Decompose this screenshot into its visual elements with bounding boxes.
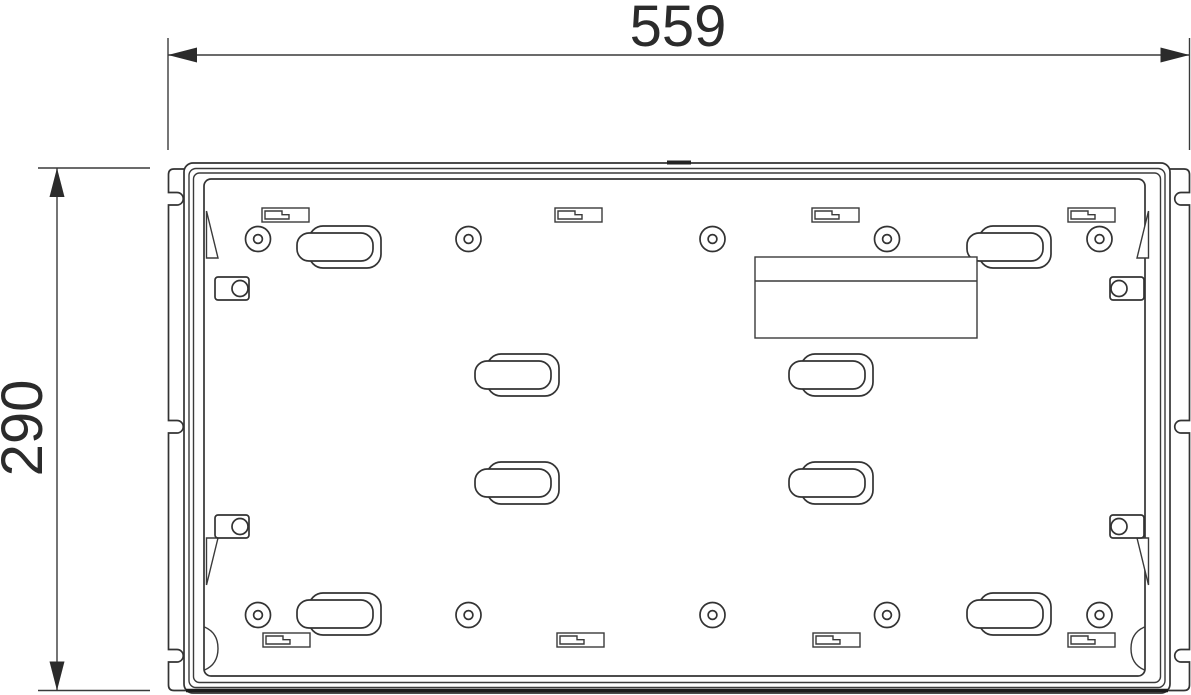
width-dimension: 559 xyxy=(168,0,1190,150)
mounting-plate-drawing: 559 290 xyxy=(0,0,1191,695)
keyhole-slot-mid-left-upper xyxy=(475,354,559,396)
retaining-clip-top-4 xyxy=(1068,208,1115,222)
retaining-clip-top-1 xyxy=(262,208,309,222)
arrowhead-right-icon xyxy=(1161,48,1190,63)
mounting-tab-left-top xyxy=(215,277,249,300)
keyhole-slot-mid-left-lower xyxy=(475,462,559,504)
label-plate xyxy=(755,257,977,338)
height-dimension-label: 290 xyxy=(0,380,55,477)
keyhole-slot-mid-right-lower xyxy=(789,462,873,504)
mounting-tab-right-top xyxy=(1110,277,1144,300)
keyhole-slot-top-left xyxy=(297,226,381,268)
screw-hole xyxy=(246,603,271,628)
label-plate-outline xyxy=(755,257,977,338)
arrowhead-left-icon xyxy=(168,48,197,63)
width-dimension-label: 559 xyxy=(630,0,727,59)
retaining-clip-bottom-4 xyxy=(1068,633,1115,647)
keyhole-slot-bottom-left xyxy=(297,593,381,635)
screw-hole xyxy=(700,227,725,252)
retaining-clip-top-2 xyxy=(555,208,602,222)
top-center-mark xyxy=(667,161,691,165)
retaining-clip-bottom-1 xyxy=(263,633,310,647)
keyhole-slot-bottom-right xyxy=(967,593,1051,635)
technical-drawing-page: 559 290 xyxy=(0,0,1191,695)
retaining-clip-bottom-2 xyxy=(557,633,604,647)
keyhole-slot-top-right xyxy=(967,226,1051,268)
screw-hole xyxy=(456,227,481,252)
screw-hole xyxy=(875,603,900,628)
screw-hole xyxy=(875,227,900,252)
keyhole-slot-mid-right-upper xyxy=(789,354,873,396)
screw-hole xyxy=(700,603,725,628)
screw-hole xyxy=(1087,603,1112,628)
arrowhead-top-icon xyxy=(50,168,65,197)
screw-hole xyxy=(1087,227,1112,252)
mounting-tab-right-bottom xyxy=(1110,515,1144,538)
screw-hole xyxy=(456,603,481,628)
mounting-tab-left-bottom xyxy=(215,515,249,538)
screw-hole xyxy=(246,227,271,252)
retaining-clip-top-3 xyxy=(812,208,859,222)
retaining-clip-bottom-3 xyxy=(813,633,860,647)
arrowhead-bottom-icon xyxy=(50,662,65,691)
height-dimension: 290 xyxy=(0,168,150,691)
